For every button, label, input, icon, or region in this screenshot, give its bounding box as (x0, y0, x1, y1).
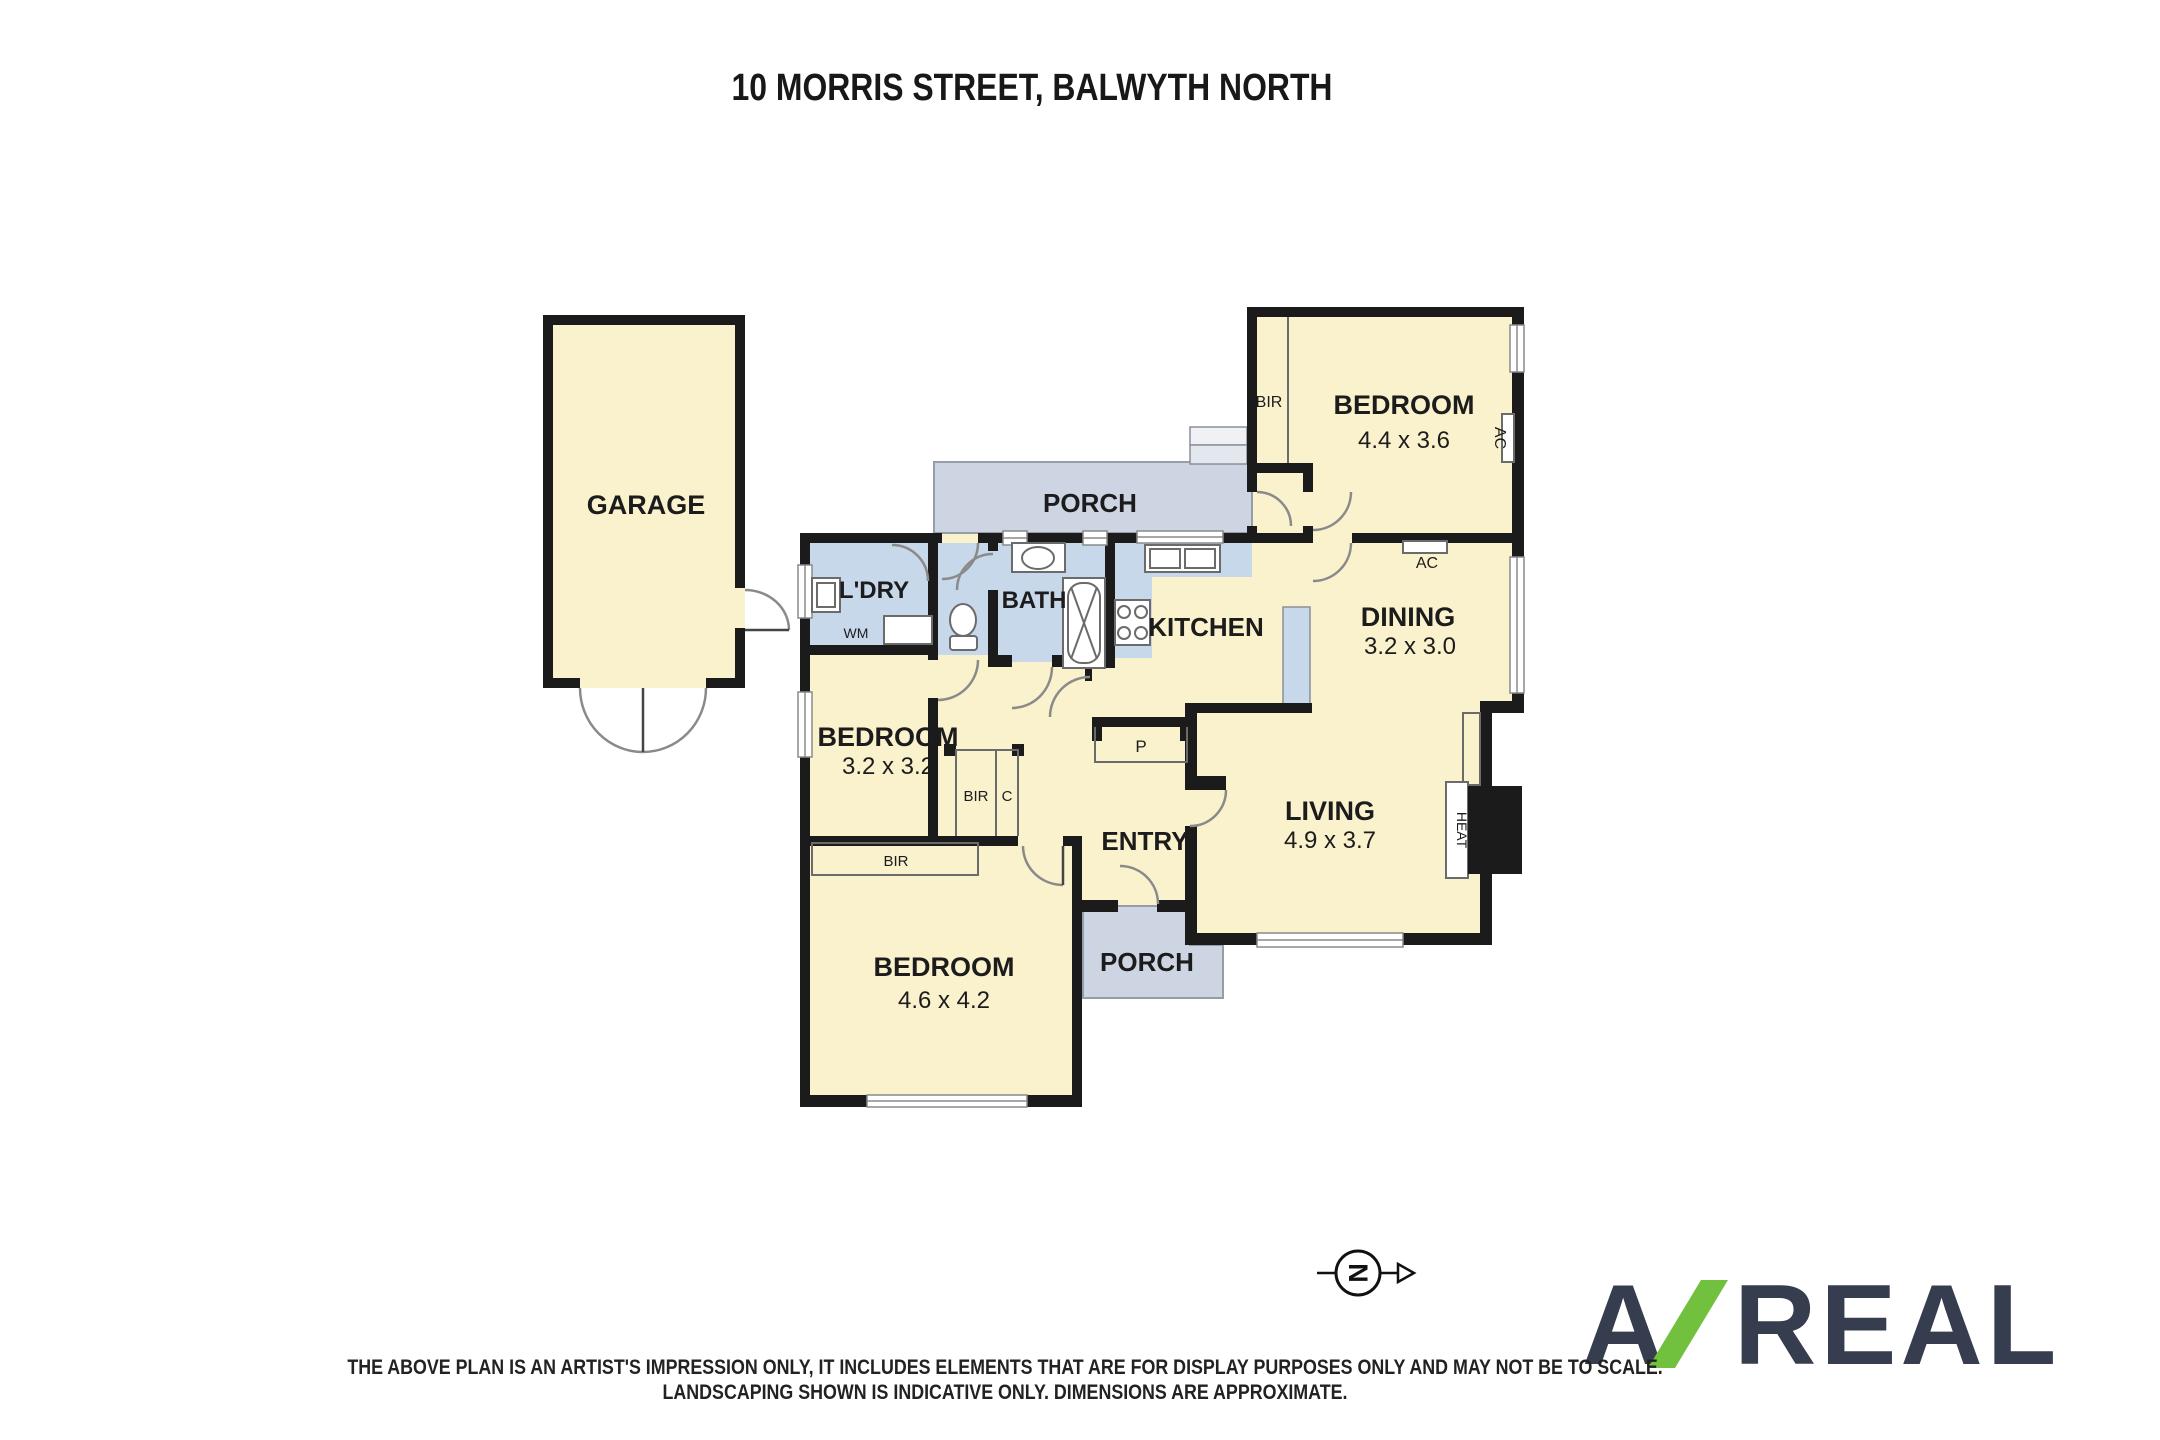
bedroom-ne-dims: 4.4 x 3.6 (1358, 427, 1450, 454)
dining-dims: 3.2 x 3.0 (1364, 633, 1456, 660)
kitchen-sink-bowl-1 (1150, 549, 1180, 568)
garage-door-left (580, 688, 643, 752)
porch-step-2 (1190, 445, 1247, 464)
toilet-bowl (950, 604, 976, 636)
compass: N (1317, 1251, 1414, 1295)
floorplan-page: 10 MORRIS STREET, BALWYTH NORTH (0, 0, 2160, 1440)
garage-label: GARAGE (587, 490, 706, 520)
disclaimer-line-1: THE ABOVE PLAN IS AN ARTIST'S IMPRESSION… (347, 1356, 1662, 1380)
compass-arrow (1398, 1264, 1414, 1282)
bedroom-w-dims: 3.2 x 3.2 (842, 753, 934, 780)
bir-ne-label: BIR (1256, 394, 1283, 411)
porch-top-label: PORCH (1043, 488, 1137, 518)
bedroom-sw-label: BEDROOM (874, 952, 1015, 982)
page-title: 10 MORRIS STREET, BALWYTH NORTH (732, 66, 1333, 108)
bedroom-sw-dims: 4.6 x 4.2 (898, 987, 990, 1014)
kitchen-sink-bowl-2 (1185, 549, 1215, 568)
bath-basin (1022, 547, 1054, 569)
bir-sw-label: BIR (883, 853, 908, 870)
porch-bottom-label: PORCH (1100, 947, 1194, 977)
washing-machine (884, 616, 932, 644)
fridge-cavity (1283, 607, 1310, 705)
laundry-label: L'DRY (839, 577, 909, 604)
pantry-label: P (1135, 737, 1146, 756)
closet-label: C (1002, 788, 1013, 805)
garage-door-right (643, 688, 706, 752)
ac-unit-wall (1403, 541, 1447, 553)
laundry-trough-inner (817, 583, 835, 607)
heat-label: HEAT (1454, 812, 1470, 849)
disclaimer: THE ABOVE PLAN IS AN ARTIST'S IMPRESSION… (347, 1356, 1662, 1405)
ac-wall-label: AC (1416, 555, 1438, 572)
living-dims: 4.9 x 3.7 (1284, 827, 1376, 854)
logo-letters-real: REAL (1734, 1262, 2060, 1389)
garage-side-door (745, 590, 789, 630)
kitchen-label: KITCHEN (1148, 612, 1264, 642)
porch-step-1 (1190, 427, 1247, 445)
living-label: LIVING (1285, 796, 1375, 826)
disclaimer-line-2: LANDSCAPING SHOWN IS INDICATIVE ONLY. DI… (663, 1381, 1348, 1405)
wm-label: WM (844, 625, 869, 641)
bedroom-w-label: BEDROOM (818, 722, 959, 752)
compass-north-label: N (1343, 1263, 1373, 1283)
bir-hall-label: BIR (963, 788, 988, 805)
ac-side-label: AC (1491, 427, 1508, 449)
toilet-cistern (950, 636, 977, 650)
entry-label: ENTRY (1101, 826, 1188, 856)
dining-label: DINING (1361, 602, 1456, 632)
floorplan-canvas: 10 MORRIS STREET, BALWYTH NORTH (0, 0, 2160, 1440)
bedroom-ne-label: BEDROOM (1334, 390, 1475, 420)
bath-label: BATH (1002, 587, 1067, 614)
fireplace-box (1468, 786, 1522, 874)
title-text: 10 MORRIS STREET, BALWYTH NORTH (732, 66, 1333, 108)
